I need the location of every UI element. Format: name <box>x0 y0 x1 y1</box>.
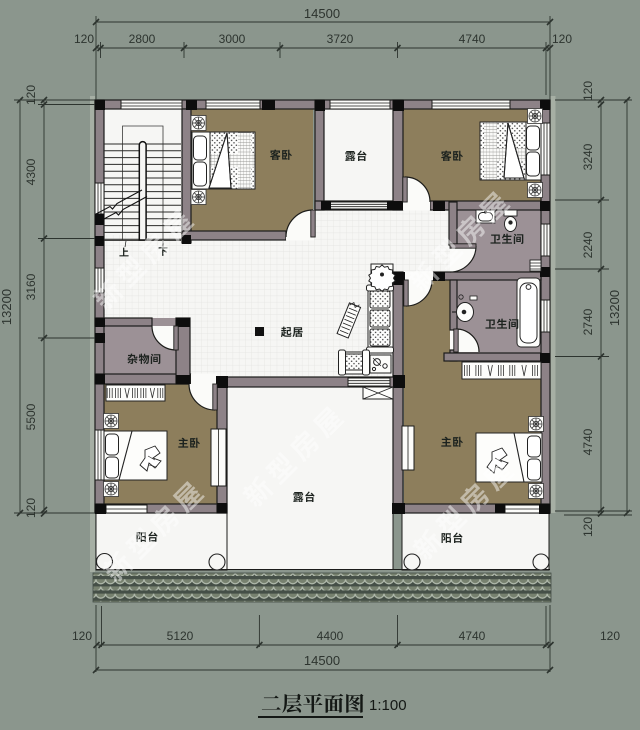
svg-text:5120: 5120 <box>167 629 194 643</box>
svg-text:120: 120 <box>24 85 38 105</box>
svg-text:5500: 5500 <box>24 403 38 430</box>
svg-text:3720: 3720 <box>327 32 354 46</box>
svg-text:1:100: 1:100 <box>369 697 407 714</box>
svg-text:3240: 3240 <box>581 143 595 170</box>
svg-text:120: 120 <box>24 498 38 518</box>
svg-text:3000: 3000 <box>219 32 246 46</box>
svg-text:120: 120 <box>72 629 92 643</box>
svg-text:120: 120 <box>552 32 572 46</box>
svg-text:2740: 2740 <box>581 308 595 335</box>
svg-text:14500: 14500 <box>304 6 340 21</box>
svg-text:4740: 4740 <box>459 629 486 643</box>
svg-text:120: 120 <box>581 517 595 537</box>
svg-text:120: 120 <box>600 629 620 643</box>
svg-text:120: 120 <box>581 81 595 101</box>
svg-text:4740: 4740 <box>581 428 595 455</box>
svg-text:2240: 2240 <box>581 231 595 258</box>
svg-text:4400: 4400 <box>317 629 344 643</box>
svg-text:4300: 4300 <box>24 158 38 185</box>
svg-text:2800: 2800 <box>129 32 156 46</box>
svg-text:3160: 3160 <box>24 273 38 300</box>
svg-text:4740: 4740 <box>459 32 486 46</box>
svg-text:120: 120 <box>74 32 94 46</box>
svg-text:13200: 13200 <box>0 289 14 325</box>
svg-text:14500: 14500 <box>304 653 340 668</box>
svg-text:13200: 13200 <box>607 290 622 326</box>
